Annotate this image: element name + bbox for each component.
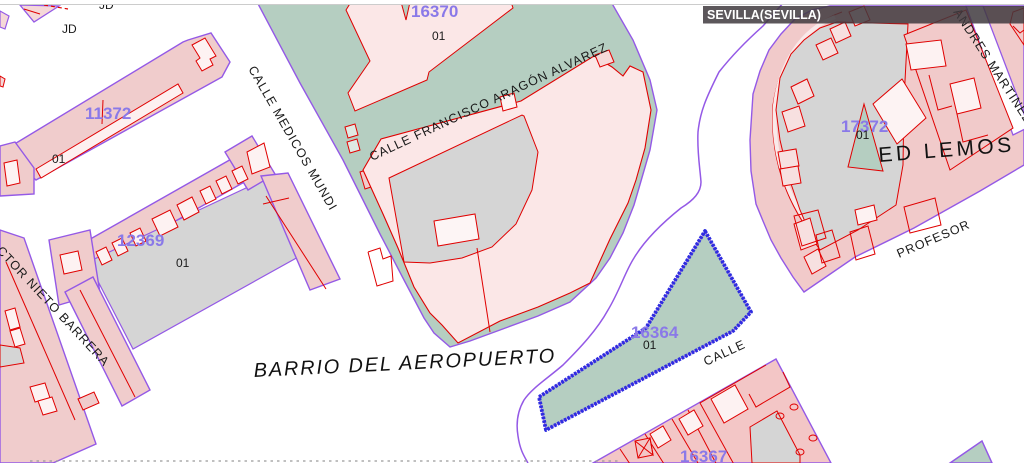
svg-text:01: 01 [643, 338, 657, 352]
svg-text:SEVILLA(SEVILLA): SEVILLA(SEVILLA) [707, 8, 821, 22]
svg-text:12369: 12369 [117, 231, 164, 250]
svg-text:01: 01 [52, 152, 66, 166]
svg-text:16367: 16367 [680, 447, 727, 463]
svg-text:JD: JD [62, 22, 77, 36]
svg-text:01: 01 [856, 128, 870, 142]
svg-text:01: 01 [176, 256, 190, 270]
svg-text:01: 01 [432, 29, 446, 43]
svg-text:11372: 11372 [85, 104, 131, 123]
